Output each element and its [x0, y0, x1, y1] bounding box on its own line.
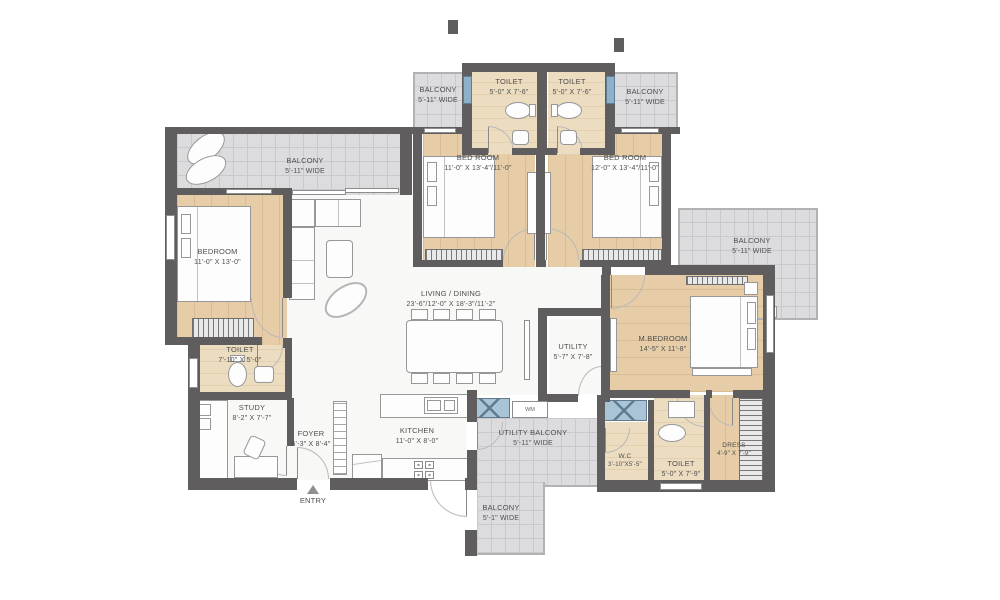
room-dims: 5'-11" WIDE — [411, 96, 465, 106]
wall-segment — [465, 530, 477, 556]
room-name: TOILET — [653, 459, 709, 470]
bed-fold-line — [740, 297, 741, 367]
sliding-door-panel — [292, 190, 346, 195]
dining-chair — [433, 309, 450, 320]
wall-segment — [283, 195, 292, 298]
wall-segment — [165, 337, 262, 345]
wall-segment — [538, 308, 610, 316]
dining-chair — [456, 373, 473, 384]
room-name: FOYER — [280, 429, 342, 440]
dining-chair — [411, 373, 428, 384]
wardrobe — [192, 318, 254, 338]
room-label-toilet-top-2: TOILET 5'-0" X 7'-6" — [541, 77, 603, 98]
railing — [477, 553, 545, 555]
room-name: BED ROOM — [570, 153, 680, 164]
wardrobe — [686, 276, 748, 285]
sofa-seam — [290, 283, 314, 284]
toilet-fixture-icon — [556, 102, 582, 119]
wall-segment — [413, 127, 422, 267]
washbasin-icon — [512, 130, 529, 145]
room-label-toilet-left: TOILET 7'-10" X 5'-0" — [205, 345, 275, 366]
room-dims: 23'-6"/12'-0" X 18'-3"/11'-2" — [392, 300, 510, 310]
dining-chair — [479, 309, 496, 320]
wardrobe — [739, 398, 763, 482]
dining-chair — [479, 373, 496, 384]
room-name: BEDROOM — [180, 247, 255, 258]
room-name: W.C — [601, 452, 649, 461]
wall-segment — [645, 265, 771, 275]
sofa-corner — [289, 199, 315, 227]
sink-bowl — [444, 400, 455, 411]
room-name: BALCONY — [613, 87, 677, 98]
wall-segment — [597, 395, 605, 492]
window — [424, 128, 456, 133]
entry-label: ENTRY — [293, 496, 333, 507]
sofa-seam — [290, 260, 314, 261]
wall-segment — [285, 340, 292, 400]
room-label-balcony-left: BALCONY 5'-11" WIDE — [255, 156, 355, 177]
pillow — [747, 302, 756, 324]
room-label-foyer: FOYER 5'-3" X 8'-4" — [280, 429, 342, 450]
bed-bench — [692, 368, 752, 376]
room-label-balcony-bottom: BALCONY 5'-1" WIDE — [476, 503, 526, 524]
utility-slider — [524, 320, 530, 380]
hob-burner — [425, 461, 434, 469]
pillow — [427, 186, 437, 206]
toilet-fixture-icon — [658, 424, 686, 442]
wall-segment — [467, 390, 477, 422]
room-name: BALCONY — [712, 236, 792, 247]
wall-segment — [413, 260, 503, 267]
room-label-kitchen: KITCHEN 11'-0" X 8'-0" — [378, 426, 456, 447]
wall-segment — [662, 127, 671, 267]
dining-chair — [433, 373, 450, 384]
room-label-balcony-top-left: BALCONY 5'-11" WIDE — [411, 85, 465, 106]
door-arc — [430, 480, 467, 517]
room-dims: 5'-0" X 7'-9" — [653, 470, 709, 480]
pillow — [199, 418, 211, 430]
wall-segment — [547, 148, 557, 155]
railing — [678, 208, 680, 267]
entry-arrow-icon — [307, 485, 319, 494]
side-table — [744, 282, 758, 295]
room-name: M.BEDROOM — [623, 334, 703, 345]
room-label-wc: W.C 3'-10"X5'-5" — [601, 452, 649, 470]
railing — [612, 72, 678, 74]
room-name: BED ROOM — [423, 153, 533, 164]
room-dims: 8'-2" X 7'-7" — [216, 414, 288, 424]
room-label-living-dining: LIVING / DINING 23'-6"/12'-0" X 18'-3"/1… — [392, 289, 510, 310]
shaft-box — [601, 400, 647, 421]
wall-column — [448, 20, 458, 34]
room-name: UTILITY BALCONY — [487, 428, 579, 439]
room-dims: 3'-10"X5'-5" — [601, 461, 649, 470]
room-label-utility: UTILITY 5'-7" X 7'-8" — [542, 342, 604, 363]
room-label-study: STUDY 8'-2" X 7'-7" — [216, 403, 288, 424]
room-dims: 5'-0" X 7'-6" — [541, 88, 603, 98]
room-name: BALCONY — [476, 503, 526, 514]
washing-machine-label: WM — [525, 407, 535, 413]
dining-chair — [456, 309, 473, 320]
dining-table — [406, 320, 503, 373]
room-dims: 12'-0" X 13'-4"/11'-0" — [570, 164, 680, 174]
wall-segment — [190, 392, 292, 400]
wall-segment — [536, 260, 546, 267]
sink-bowl — [427, 400, 441, 411]
room-dims: 5'-1" WIDE — [476, 514, 526, 524]
toilet-tank — [551, 104, 558, 117]
room-label-toilet-top-1: TOILET 5'-0" X 7'-6" — [478, 77, 540, 98]
washbasin-icon — [254, 366, 274, 383]
room-name: KITCHEN — [378, 426, 456, 437]
wall-segment — [536, 150, 545, 267]
railing — [543, 482, 545, 555]
room-dims: 5'-3" X 8'-4" — [280, 440, 342, 450]
room-label-utility-balcony: UTILITY BALCONY 5'-11" WIDE — [487, 428, 579, 449]
railing — [678, 208, 818, 210]
room-dims: 5'-11" WIDE — [613, 98, 677, 108]
wall-segment — [545, 394, 578, 402]
room-name: LIVING / DINING — [392, 289, 510, 300]
room-dims: 5'-11" WIDE — [255, 167, 355, 177]
floor-plan: WM BALCONY 5'-11" WIDE TOILET 5'-0" X 7'… — [0, 0, 1000, 600]
room-label-toilet-master: TOILET 5'-0" X 7'-9" — [653, 459, 709, 480]
room-dims: 5'-11" WIDE — [712, 247, 792, 257]
window — [660, 483, 702, 490]
window — [189, 358, 198, 388]
pillow — [747, 328, 756, 350]
room-label-dress: DRESS 4'-9" X 7'-9" — [706, 441, 762, 459]
coffee-table — [326, 240, 353, 278]
room-dims: 11'-0" X 13'-0" — [180, 258, 255, 268]
wall-segment — [190, 478, 297, 490]
hob-burner — [414, 461, 423, 469]
room-label-balcony-right: BALCONY 5'-11" WIDE — [712, 236, 792, 257]
room-dims: 5'-0" X 7'-6" — [478, 88, 540, 98]
wall-column — [614, 38, 624, 52]
room-dims: 11'-0" X 13'-4"/11'-0" — [423, 164, 533, 174]
window — [766, 295, 774, 353]
window — [226, 189, 272, 194]
entry-text: ENTRY — [293, 496, 333, 507]
wall-segment — [610, 390, 690, 398]
room-name: BALCONY — [255, 156, 355, 167]
tall-cabinet — [610, 318, 617, 372]
wall-segment — [733, 390, 771, 398]
wall-segment — [602, 265, 611, 275]
room-dims: 5'-11" WIDE — [487, 439, 579, 449]
sofa-side — [289, 227, 315, 300]
room-label-balcony-top-right: BALCONY 5'-11" WIDE — [613, 87, 677, 108]
window — [166, 215, 175, 260]
railing — [413, 72, 462, 74]
room-name: STUDY — [216, 403, 288, 414]
toilet-tank — [529, 104, 536, 117]
room-dims: 5'-7" X 7'-8" — [542, 353, 604, 363]
wall-segment — [330, 478, 428, 490]
wall-segment — [177, 127, 415, 134]
toilet-tank — [668, 401, 695, 418]
room-label-m-bedroom: M.BEDROOM 14'-5" X 11'-8" — [623, 334, 703, 355]
room-dims: 11'-0" X 8'-0" — [378, 437, 456, 447]
sliding-door-panel — [345, 188, 399, 193]
room-label-bedroom-3: BED ROOM 12'-0" X 13'-4"/11'-0" — [570, 153, 680, 174]
washing-machine: WM — [512, 401, 548, 418]
room-name: TOILET — [541, 77, 603, 88]
wall-segment — [400, 134, 412, 195]
pillow — [199, 404, 211, 416]
pillow — [181, 214, 191, 234]
washbasin-icon — [560, 130, 577, 145]
railing — [816, 208, 818, 320]
window — [621, 128, 659, 133]
room-dims: 7'-10" X 5'-0" — [205, 356, 275, 366]
room-name: TOILET — [205, 345, 275, 356]
sofa-seam — [338, 200, 339, 226]
room-label-bedroom-1: BEDROOM 11'-0" X 13'-0" — [180, 247, 255, 268]
toilet-fixture-icon — [505, 102, 531, 119]
room-label-bedroom-2: BED ROOM 11'-0" X 13'-4"/11'-0" — [423, 153, 533, 174]
room-name: UTILITY — [542, 342, 604, 353]
room-dims: 14'-5" X 11'-8" — [623, 345, 703, 355]
room-name: TOILET — [478, 77, 540, 88]
wall-segment — [601, 275, 610, 402]
pillow — [649, 186, 659, 206]
railing — [545, 485, 598, 487]
room-name: DRESS — [706, 441, 762, 450]
wall-segment — [467, 450, 477, 480]
room-dims: 4'-9" X 7'-9" — [706, 450, 762, 459]
dining-chair — [411, 309, 428, 320]
room-name: BALCONY — [411, 85, 465, 96]
